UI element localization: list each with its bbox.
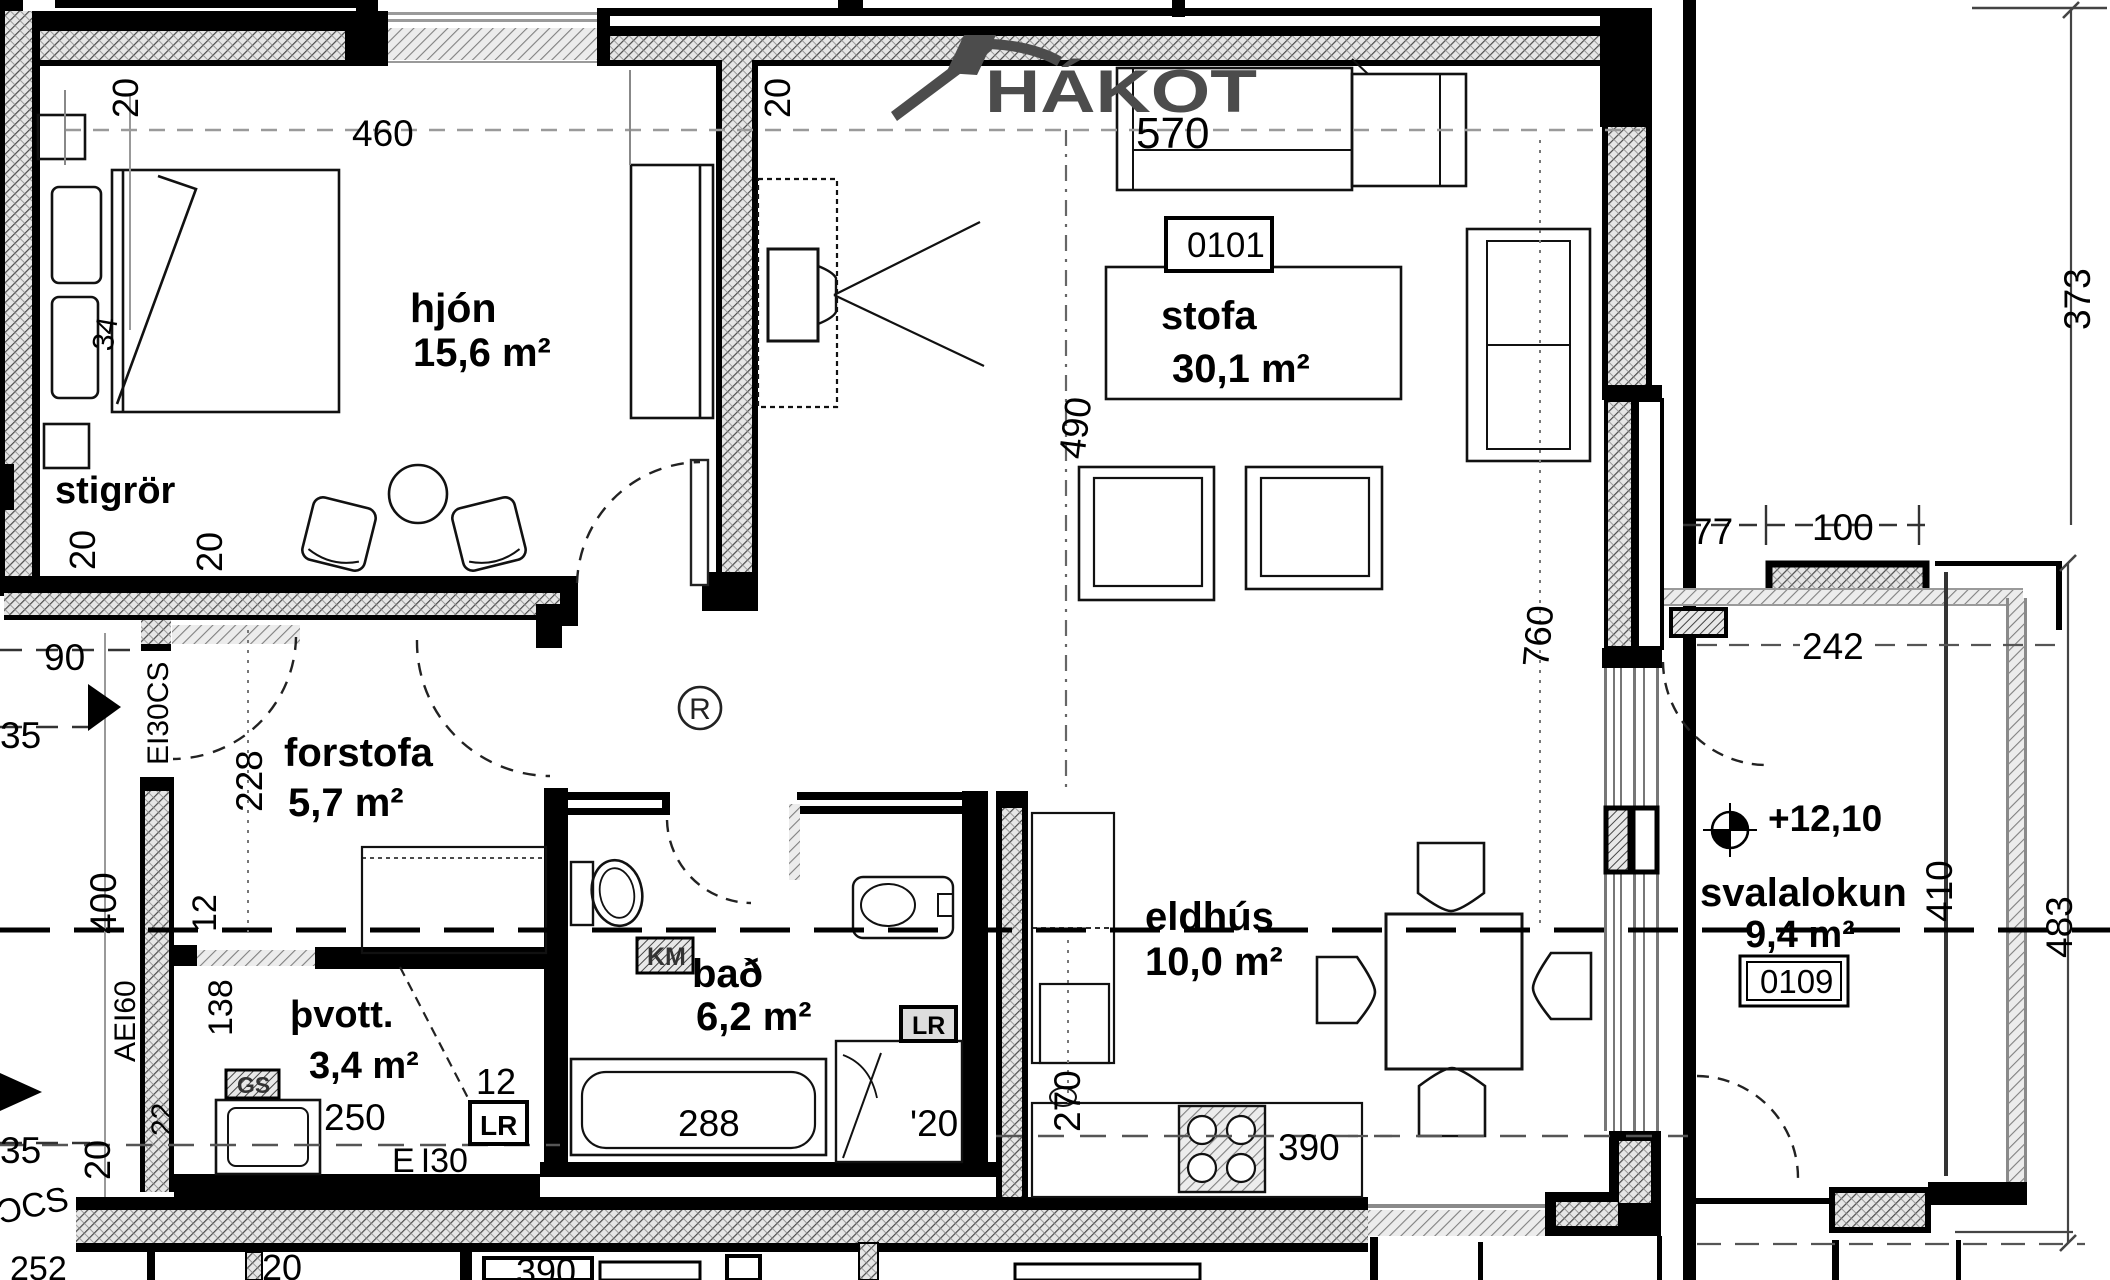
svg-text:forstofa: forstofa bbox=[284, 731, 434, 775]
svg-text:þvott.: þvott. bbox=[290, 994, 393, 1036]
svg-text:250: 250 bbox=[324, 1097, 386, 1138]
svg-text:100: 100 bbox=[1812, 507, 1874, 548]
svg-text:242: 242 bbox=[1802, 626, 1864, 667]
svg-text:bað: bað bbox=[692, 952, 763, 996]
svg-text:228: 228 bbox=[229, 750, 270, 812]
svg-text:390: 390 bbox=[1278, 1127, 1340, 1168]
svg-text:LR: LR bbox=[480, 1110, 517, 1141]
svg-text:stigrör: stigrör bbox=[55, 470, 176, 512]
svg-text:400: 400 bbox=[83, 872, 124, 934]
svg-text:15,6 m²: 15,6 m² bbox=[413, 331, 551, 375]
svg-text:252: 252 bbox=[10, 1250, 67, 1280]
svg-text:20: 20 bbox=[757, 78, 798, 118]
svg-text:35: 35 bbox=[0, 1130, 41, 1171]
svg-text:EI30: EI30 bbox=[392, 1142, 468, 1180]
svg-text:hjón: hjón bbox=[410, 285, 497, 331]
svg-text:20: 20 bbox=[62, 530, 103, 570]
svg-text:svalalokun: svalalokun bbox=[1700, 871, 1907, 915]
svg-text:6,2 m²: 6,2 m² bbox=[696, 995, 812, 1039]
svg-text:5,7 m²: 5,7 m² bbox=[288, 781, 404, 825]
svg-text:LR: LR bbox=[912, 1012, 945, 1040]
svg-text:483: 483 bbox=[2039, 896, 2080, 958]
svg-text:AEI60: AEI60 bbox=[109, 980, 142, 1062]
svg-text:390: 390 bbox=[516, 1251, 576, 1280]
svg-text:30,1 m²: 30,1 m² bbox=[1172, 347, 1310, 391]
svg-text:460: 460 bbox=[352, 113, 414, 154]
svg-text:12: 12 bbox=[186, 894, 224, 932]
svg-text:22: 22 bbox=[146, 1103, 179, 1136]
svg-text:20: 20 bbox=[77, 1140, 118, 1180]
svg-text:3,4 m²: 3,4 m² bbox=[309, 1045, 419, 1087]
svg-text:stofa: stofa bbox=[1161, 294, 1257, 338]
svg-text:34: 34 bbox=[86, 315, 124, 354]
svg-text:288: 288 bbox=[678, 1103, 740, 1144]
svg-text:35: 35 bbox=[0, 715, 41, 756]
svg-text:R: R bbox=[689, 693, 711, 726]
svg-text:0109: 0109 bbox=[1760, 963, 1833, 1000]
svg-text:90: 90 bbox=[44, 637, 85, 678]
svg-text:eldhús: eldhús bbox=[1145, 895, 1274, 939]
svg-text:270: 270 bbox=[1047, 1070, 1088, 1132]
svg-text:KM: KM bbox=[647, 943, 686, 971]
svg-text:0101: 0101 bbox=[1187, 226, 1265, 265]
svg-text:410: 410 bbox=[1919, 860, 1960, 922]
svg-text:12: 12 bbox=[476, 1061, 516, 1102]
svg-text:570: 570 bbox=[1136, 109, 1209, 158]
svg-text:490: 490 bbox=[1051, 395, 1099, 461]
svg-text:EI30CS: EI30CS bbox=[142, 662, 175, 765]
svg-text:9,4 m²: 9,4 m² bbox=[1745, 914, 1855, 956]
svg-text:373: 373 bbox=[2057, 268, 2098, 330]
svg-text:+12,10: +12,10 bbox=[1768, 798, 1882, 839]
svg-text:20: 20 bbox=[262, 1247, 302, 1280]
svg-text:138: 138 bbox=[202, 979, 240, 1036]
svg-text:'20: '20 bbox=[910, 1103, 958, 1144]
svg-text:10,0 m²: 10,0 m² bbox=[1145, 940, 1283, 984]
svg-text:760: 760 bbox=[1515, 604, 1561, 669]
svg-text:77: 77 bbox=[1692, 511, 1733, 552]
svg-text:20: 20 bbox=[105, 78, 146, 118]
svg-text:HÁKOT: HÁKOT bbox=[985, 58, 1257, 125]
svg-text:GS: GS bbox=[237, 1072, 270, 1098]
svg-text:20: 20 bbox=[189, 532, 230, 572]
